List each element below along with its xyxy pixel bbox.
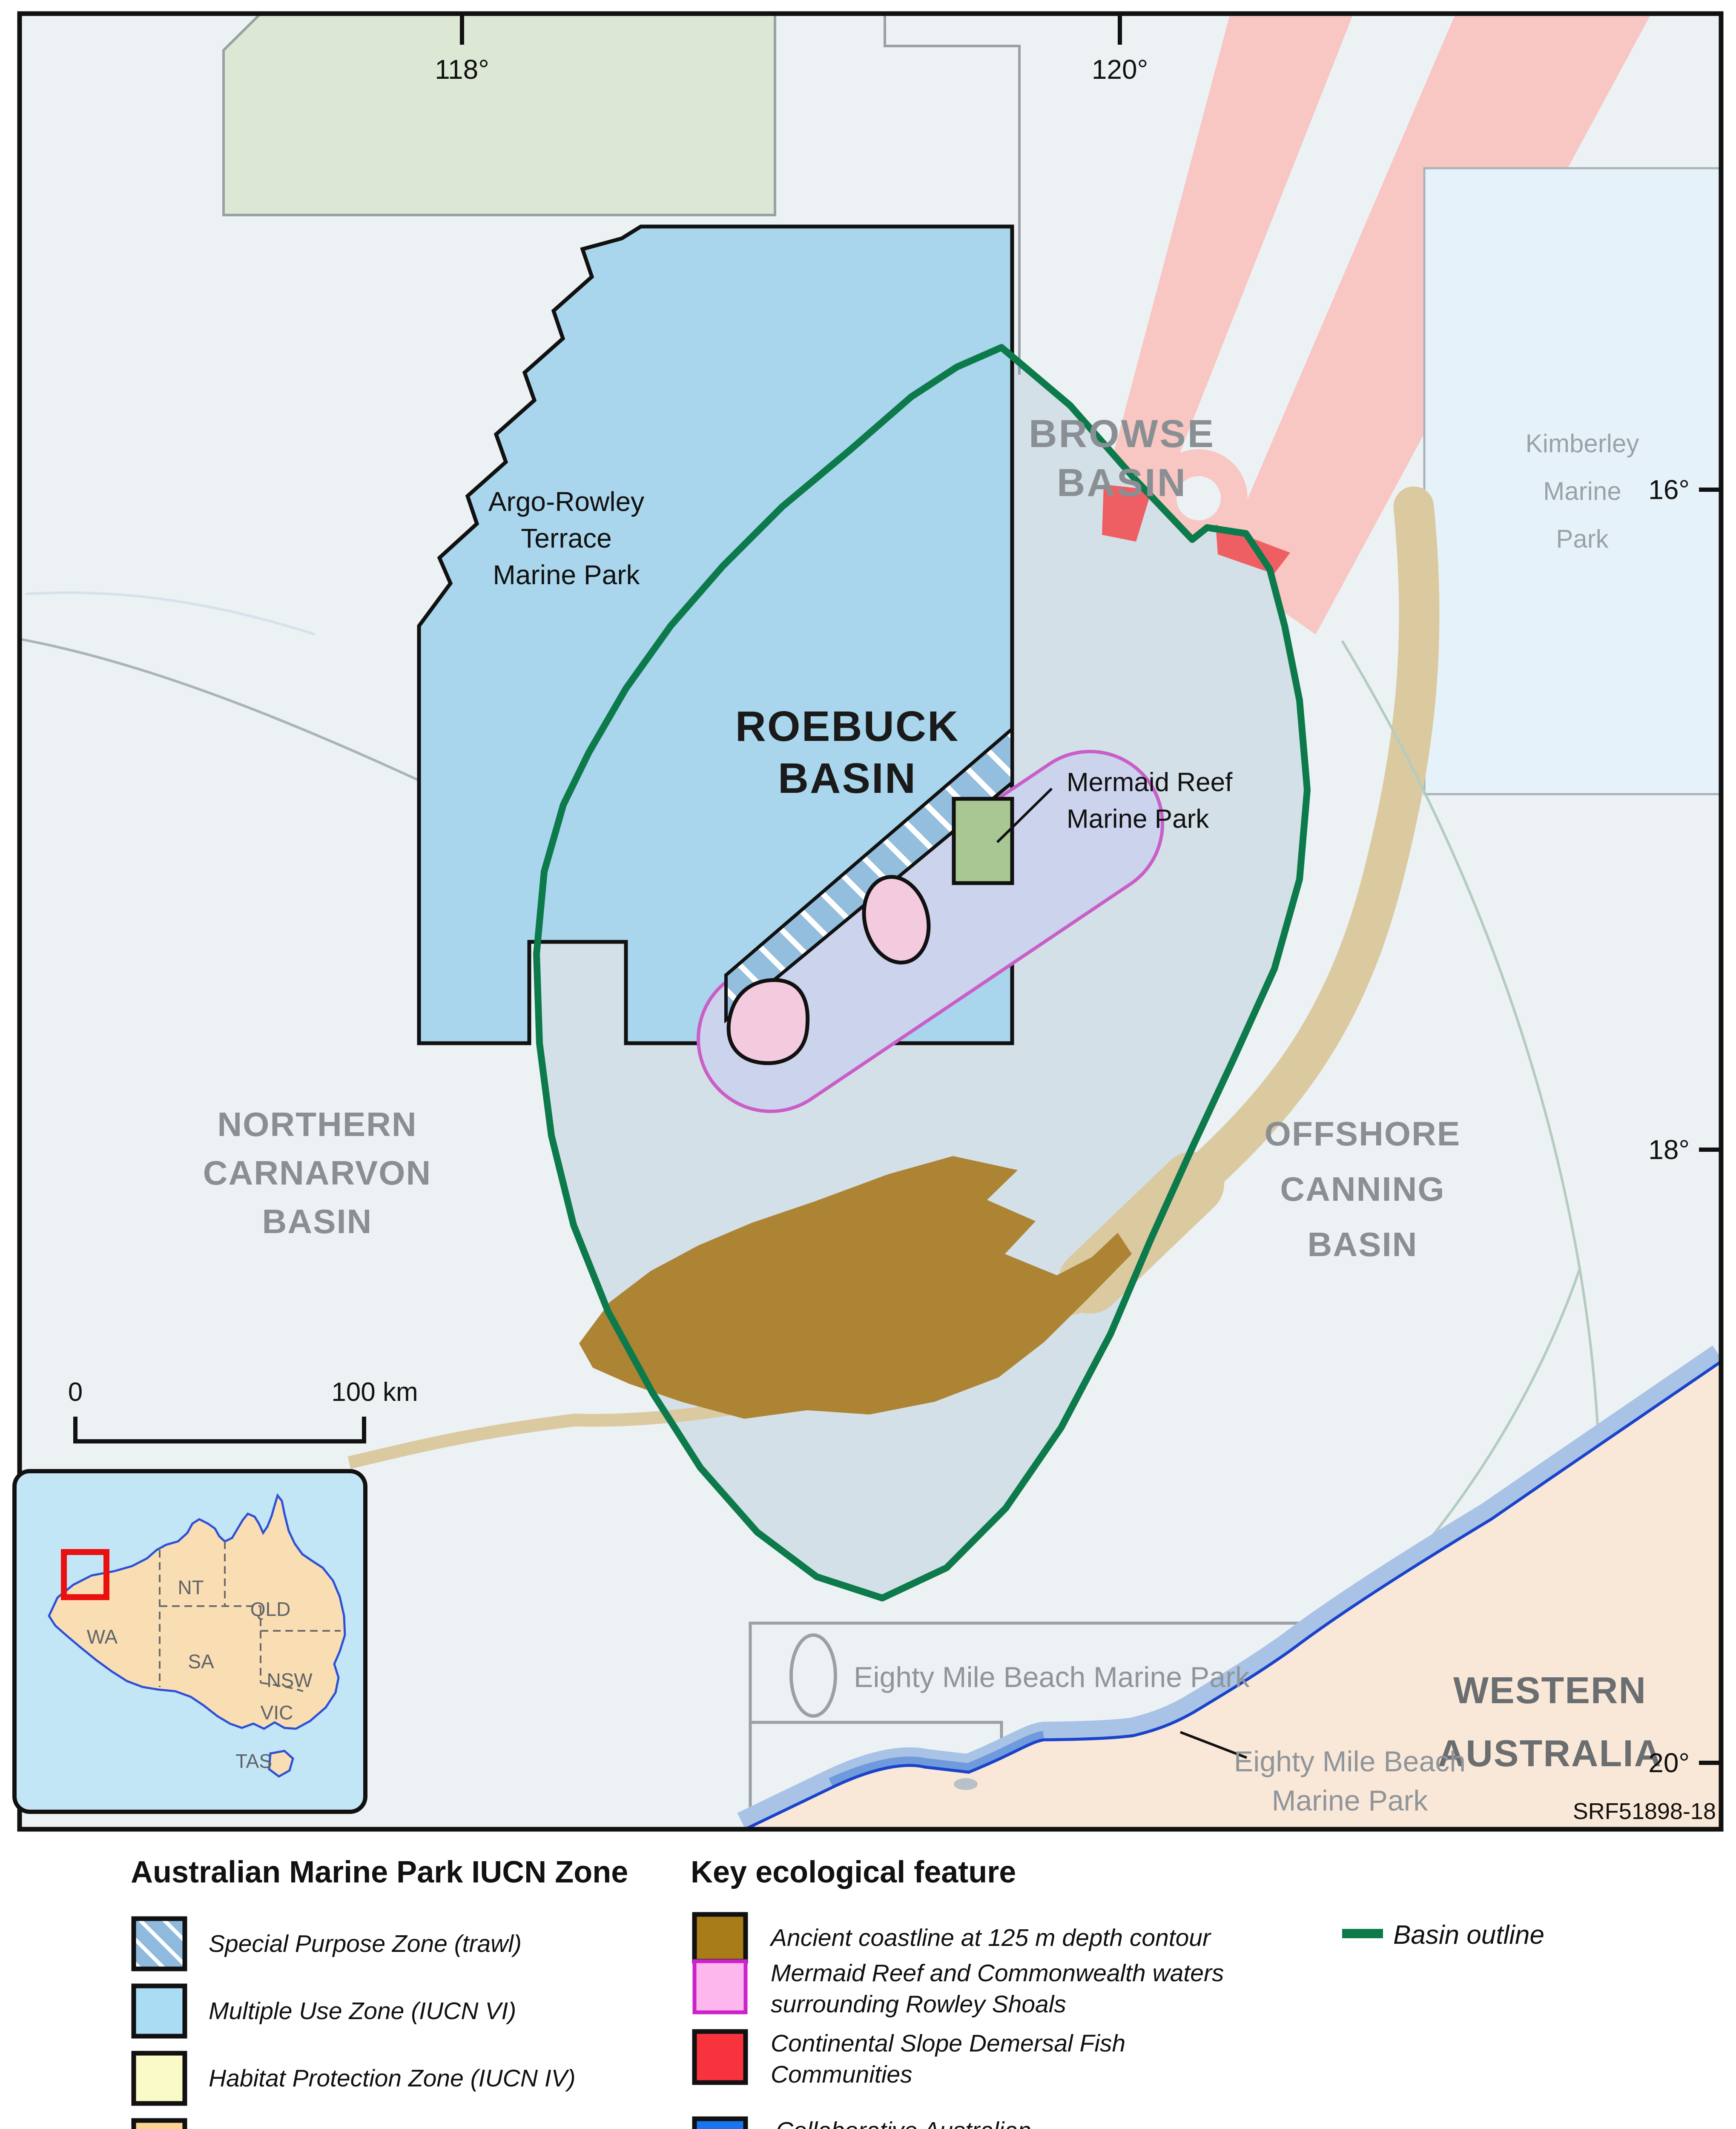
browse-basin-label: BASIN <box>1057 461 1187 505</box>
legend-item-collaborative-protected: Collaborative Australian Protected Areas <box>776 2115 1031 2129</box>
inset-state-vic: VIC <box>261 1701 293 1724</box>
roebuck-basin-label: BASIN <box>778 755 917 802</box>
legend-title-iucn: Australian Marine Park IUCN Zone <box>131 1855 628 1890</box>
figure-page: BROWSE BASIN Kimberley Marine Park ROEBU… <box>0 0 1736 2129</box>
swatch-demersal-fish <box>692 2029 748 2085</box>
argo-rowley-label: Terrace <box>521 523 611 554</box>
coastal-island <box>954 1778 978 1790</box>
argo-rowley-label: Marine Park <box>493 560 640 590</box>
lat-label-18: 18° <box>1648 1134 1690 1165</box>
offshore-canning-label: BASIN <box>1308 1225 1418 1263</box>
inset-state-tas: TAS <box>235 1750 272 1772</box>
basin-outline-key-icon <box>1341 1928 1384 1939</box>
legend-item-habitat-protection-zone: Habitat Protection Zone (IUCN IV) <box>209 2051 576 2106</box>
legend-item-ancient-coastline: Ancient coastline at 125 m depth contour <box>771 1912 1211 1964</box>
lon-label-120: 120° <box>1092 54 1148 85</box>
swatch-multiple-use <box>131 1983 187 2039</box>
eighty-mile-callout-label: Eighty Mile Beach <box>1234 1745 1466 1778</box>
offshore-canning-label: CANNING <box>1280 1170 1445 1208</box>
northern-carnarvon-label: BASIN <box>262 1202 373 1240</box>
scale-start: 0 <box>68 1377 83 1407</box>
scale-end: 100 km <box>331 1377 418 1407</box>
shelf-region <box>224 14 775 215</box>
swatch-special-purpose <box>131 1916 187 1971</box>
lat-label-20: 20° <box>1648 1747 1690 1778</box>
kimberley-mp-label: Kimberley <box>1526 429 1639 458</box>
lon-label-118: 118° <box>435 54 489 85</box>
inset-state-nt: NT <box>178 1576 204 1598</box>
legend-title-kef: Key ecological feature <box>691 1855 1016 1890</box>
kimberley-mp-label: Park <box>1556 525 1609 553</box>
map-canvas: BROWSE BASIN Kimberley Marine Park ROEBU… <box>0 0 1736 1839</box>
western-australia-label: AUSTRALIA <box>1438 1732 1662 1774</box>
browse-basin-label: BROWSE <box>1029 412 1215 456</box>
northern-carnarvon-label: CARNARVON <box>203 1154 432 1192</box>
legend-item-recreational-use-zone: Recreational Use Zone (IUCN IV) <box>209 2118 569 2129</box>
inset-state-sa: SA <box>188 1650 214 1673</box>
legend-item-mermaid-rowley: Mermaid Reef and Commonwealth waters sur… <box>771 1958 1224 2020</box>
legend-item-basin-outline: Basin outline <box>1393 1918 1544 1952</box>
swatch-recreational-use <box>131 2118 187 2129</box>
legend-item-multiple-use-zone: Multiple Use Zone (IUCN VI) <box>209 1983 516 2039</box>
legend-item-special-purpose-zone: Special Purpose Zone (trawl) <box>209 1916 522 1971</box>
inset-state-wa: WA <box>87 1626 118 1648</box>
swatch-mermaid-rowley <box>692 1959 748 2015</box>
argo-rowley-label: Argo-Rowley <box>488 486 644 517</box>
inset-state-qld: QLD <box>250 1598 291 1620</box>
roebuck-basin-label: ROEBUCK <box>735 703 960 750</box>
eighty-mile-callout-label: Marine Park <box>1272 1785 1429 1817</box>
eighty-mile-inline-label: Eighty Mile Beach Marine Park <box>854 1661 1250 1693</box>
inset-map: WA NT QLD SA NSW VIC TAS <box>14 1471 365 1812</box>
national-park-zone <box>954 799 1012 883</box>
northern-carnarvon-label: NORTHERN <box>217 1105 417 1143</box>
swatch-collaborative-protected <box>692 2116 748 2129</box>
swatch-habitat-protection <box>131 2051 187 2106</box>
sanctuary-zone-2 <box>729 980 808 1063</box>
western-australia-label: WESTERN <box>1453 1669 1647 1711</box>
offshore-canning-label: OFFSHORE <box>1265 1115 1461 1153</box>
legend-item-demersal-fish: Continental Slope Demersal Fish Communit… <box>771 2028 1125 2090</box>
inset-state-nsw: NSW <box>267 1669 313 1691</box>
swatch-ancient-coastline <box>692 1912 748 1964</box>
map-reference: SRF51898-18 <box>1573 1799 1716 1824</box>
mermaid-reef-label: Mermaid Reef <box>1067 768 1233 797</box>
mermaid-reef-label: Marine Park <box>1067 804 1209 834</box>
lat-label-16: 16° <box>1648 474 1690 505</box>
kimberley-mp-label: Marine <box>1543 477 1621 505</box>
